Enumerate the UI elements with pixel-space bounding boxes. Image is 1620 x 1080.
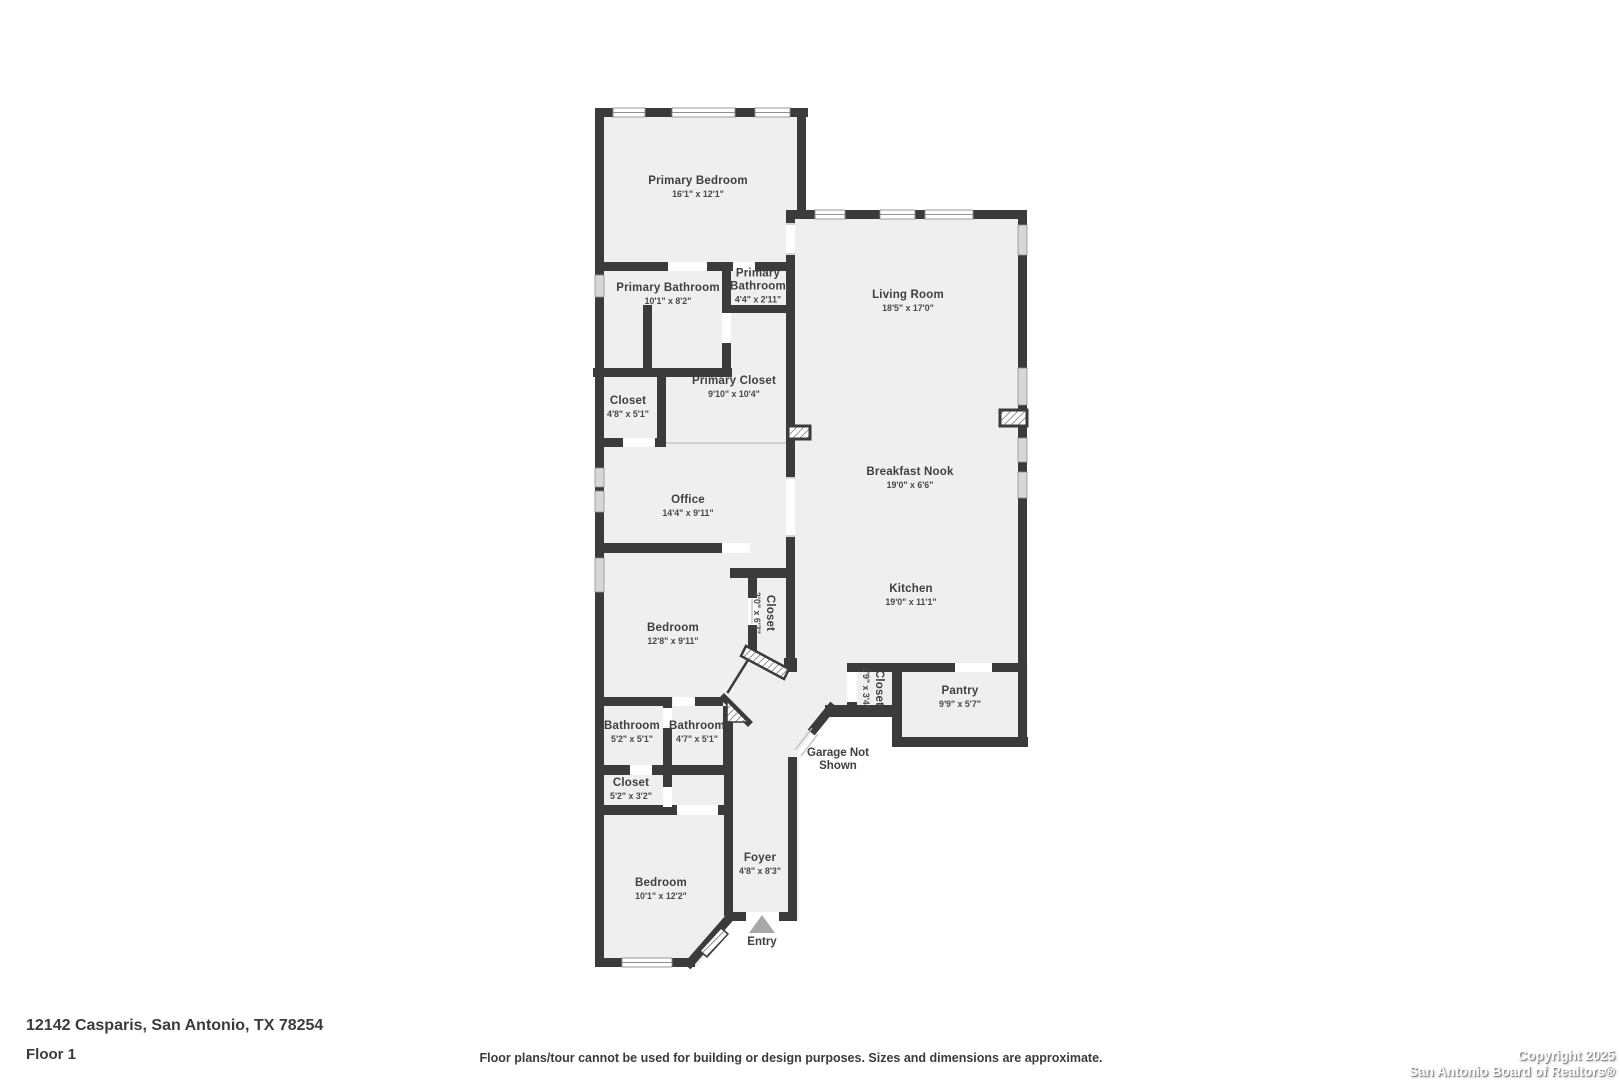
room-dims: 2'9" x 3'4" [861, 667, 871, 709]
room-dims: 12'8" x 9'11" [647, 636, 698, 646]
window-right-nook-1 [1018, 368, 1027, 405]
room-name: Kitchen [889, 583, 933, 596]
room-dims: 4'4" x 2'11" [735, 295, 781, 305]
disclaimer-text: Floor plans/tour cannot be used for buil… [479, 1051, 1102, 1065]
window-left-office-1 [595, 468, 604, 487]
pass-through-stub [788, 426, 810, 439]
room-label-closet-c: Closet 2'9" x 3'4" [861, 667, 885, 709]
room-name: Closet [610, 395, 646, 408]
floor-areas [595, 108, 1028, 967]
room-name: Primary Bathroom [616, 282, 720, 295]
room-name: Living Room [872, 289, 944, 302]
property-address: 12142 Casparis, San Antonio, TX 78254 [26, 1017, 323, 1035]
room-label-closet-a: Closet 4'8" x 5'1" [607, 395, 649, 419]
room-name: Primary Bathroom [727, 268, 789, 294]
window-right-living [1018, 225, 1027, 255]
room-name: Bathroom [669, 720, 725, 733]
room-name: Closet [763, 595, 776, 631]
room-label-kitchen: Kitchen 19'0" x 11'1" [885, 583, 936, 607]
room-dims: 10'1" x 12'2" [635, 891, 687, 901]
room-label-closet-d: Closet 5'2" x 3'2" [610, 777, 652, 801]
room-name: Closet [613, 777, 649, 790]
entry-label: Entry [747, 936, 776, 948]
room-name: Office [671, 494, 705, 507]
room-label-primary-closet: Primary Closet 9'10" x 10'4" [692, 375, 776, 399]
floor-number: Floor 1 [26, 1046, 76, 1063]
room-name: Primary Closet [692, 375, 776, 388]
room-dims: 4'8" x 5'1" [607, 409, 649, 419]
room-label-primary-bathroom-2: Primary Bathroom 4'4" x 2'11" [727, 268, 789, 305]
garage-note: Garage Not Shown [793, 747, 883, 773]
room-dims: 14'4" x 9'11" [662, 508, 713, 518]
room-label-office: Office 14'4" x 9'11" [662, 494, 713, 518]
room-name: Foyer [744, 852, 776, 865]
room-dims: 10'1" x 8'2" [645, 296, 692, 306]
room-label-breakfast-nook: Breakfast Nook 19'0" x 6'6" [866, 466, 953, 490]
room-dims: 19'0" x 6'6" [887, 480, 934, 490]
room-dims: 4'7" x 5'1" [676, 734, 718, 744]
room-label-primary-bedroom: Primary Bedroom 16'1" x 12'1" [648, 175, 748, 199]
room-label-bedroom-a: Bedroom 12'8" x 9'11" [647, 622, 699, 646]
fireplace-stub [1000, 410, 1027, 426]
copyright-line1: Copyright 2025 [1409, 1048, 1615, 1064]
room-dims: 19'0" x 11'1" [885, 597, 936, 607]
room-label-pantry: Pantry 9'9" x 5'7" [939, 685, 981, 709]
window-right-nook-2 [1018, 438, 1027, 462]
room-dims: 4'8" x 8'3" [739, 866, 781, 876]
room-label-primary-bathroom: Primary Bathroom 10'1" x 8'2" [616, 282, 720, 306]
room-name: Bedroom [647, 622, 699, 635]
room-name: Pantry [941, 685, 978, 698]
room-dims: 9'9" x 5'7" [939, 699, 981, 709]
room-dims: 2'0" x 6'7" [752, 592, 762, 634]
room-dims: 5'2" x 3'2" [610, 791, 652, 801]
room-dims: 9'10" x 10'4" [708, 389, 760, 399]
floorplan-drawing [0, 0, 1620, 1080]
room-name: Bedroom [635, 877, 687, 890]
room-name: Breakfast Nook [866, 466, 953, 479]
room-label-bathroom-b: Bathroom 4'7" x 5'1" [669, 720, 725, 744]
room-name: Bathroom [604, 720, 660, 733]
room-label-living-room: Living Room 18'5" x 17'0" [872, 289, 944, 313]
window-bedroom-bottom [622, 958, 672, 967]
floorplan-page: Primary Bedroom 16'1" x 12'1" Primary Ba… [0, 0, 1620, 1080]
room-label-bathroom-a: Bathroom 5'2" x 5'1" [604, 720, 660, 744]
room-label-bedroom-b: Bedroom 10'1" x 12'2" [635, 877, 687, 901]
room-label-foyer: Foyer 4'8" x 8'3" [739, 852, 781, 876]
room-label-closet-b: Closet 2'0" x 6'7" [752, 592, 776, 634]
window-left-bedroom [595, 558, 604, 592]
room-dims: 16'1" x 12'1" [672, 189, 724, 199]
window-left-bathroom [595, 275, 604, 297]
copyright-notice: Copyright 2025 San Antonio Board of Real… [1409, 1048, 1615, 1079]
window-left-office-2 [595, 491, 604, 512]
window-living-2 [880, 210, 915, 219]
window-living-1 [815, 210, 845, 219]
window-right-nook-3 [1018, 472, 1027, 498]
copyright-line2: San Antonio Board of Realtors® [1409, 1064, 1615, 1080]
window-top-1 [613, 108, 645, 117]
room-dims: 18'5" x 17'0" [882, 303, 934, 313]
room-name: Closet [872, 670, 885, 706]
window-living-3 [925, 210, 973, 219]
window-top-3 [755, 108, 790, 117]
window-top-2 [672, 108, 735, 117]
room-dims: 5'2" x 5'1" [611, 734, 653, 744]
room-name: Primary Bedroom [648, 175, 748, 188]
